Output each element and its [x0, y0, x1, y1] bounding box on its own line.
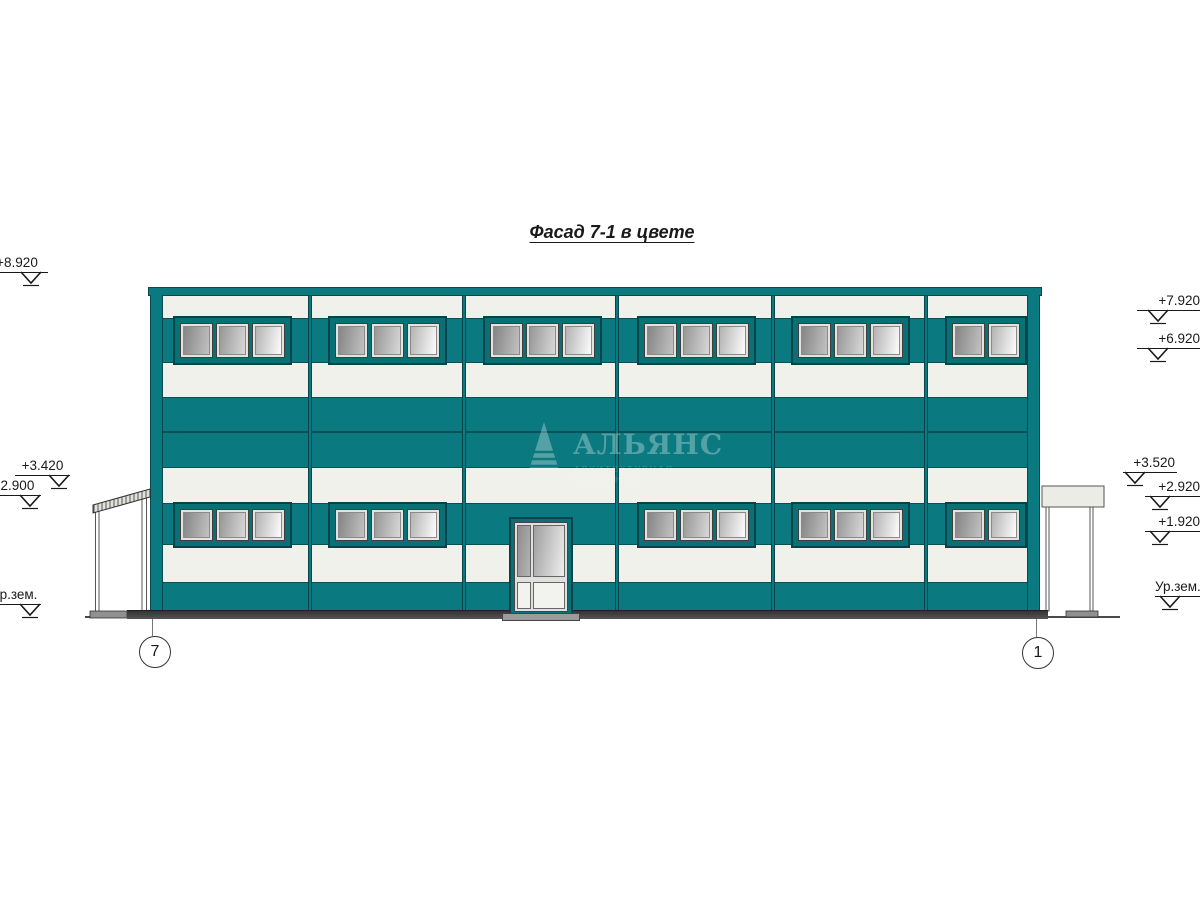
window-group: [637, 502, 756, 548]
axis-leader-line: [152, 619, 153, 636]
window-group: [483, 316, 602, 365]
window-pane: [526, 323, 559, 358]
window-group: [328, 502, 447, 548]
window-pane: [988, 509, 1021, 541]
facade-band-white: [163, 363, 1027, 397]
window-pane: [644, 323, 677, 358]
window-glass: [374, 512, 401, 538]
canopy-post: [1046, 507, 1049, 611]
window-pane: [371, 509, 404, 541]
elevation-arrow-icon: [1147, 495, 1173, 511]
window-pane: [407, 323, 440, 358]
door-leaf-wide: [533, 525, 565, 609]
elevation-mark: +6.920: [1137, 332, 1200, 349]
elevation-value: +7.920: [1158, 293, 1200, 308]
elevation-value: +2.920: [1158, 479, 1200, 494]
window-pane: [870, 323, 903, 358]
window-glass: [410, 326, 437, 355]
door-threshold: [502, 613, 580, 621]
facade-band-white: [163, 545, 1027, 582]
canopy-base: [1066, 611, 1098, 617]
panel-joint: [462, 296, 466, 610]
elevation-arrow-icon: [1147, 530, 1173, 546]
elevation-value: Ур.зем.: [0, 587, 37, 602]
entrance-door: [509, 517, 573, 617]
window-glass: [338, 512, 365, 538]
elevation-mark: +3.420: [15, 459, 70, 476]
elevation-value: +8.920: [0, 255, 38, 270]
elevation-value: Ур.зем.: [1155, 579, 1200, 594]
window-glass: [801, 512, 828, 538]
window-pane: [716, 323, 749, 358]
window-group: [173, 502, 292, 548]
window-glass: [183, 326, 210, 355]
window-pane: [371, 323, 404, 358]
window-glass: [991, 326, 1018, 355]
window-glass: [837, 512, 864, 538]
axis-leader-line: [1036, 619, 1037, 637]
window-glass: [719, 326, 746, 355]
door-panel: [533, 582, 565, 609]
window-glass: [647, 326, 674, 355]
elevation-value: +6.920: [1158, 331, 1200, 346]
window-glass: [647, 512, 674, 538]
door-glass: [517, 525, 531, 577]
window-glass: [183, 512, 210, 538]
window-pane: [216, 323, 249, 358]
window-glass: [565, 326, 592, 355]
elevation-mark: +2.920: [1145, 480, 1200, 497]
window-pane: [716, 509, 749, 541]
window-pane: [680, 323, 713, 358]
elevation-arrow-icon: [1157, 595, 1183, 611]
elevation-mark: +2.900: [0, 479, 41, 496]
window-group: [328, 316, 447, 365]
elevation-value: +3.420: [22, 458, 64, 473]
window-glass: [873, 326, 900, 355]
window-glass: [801, 326, 828, 355]
window-pane: [680, 509, 713, 541]
canopy-post: [96, 507, 100, 612]
elevation-arrow-icon: [17, 494, 43, 510]
window-pane: [216, 509, 249, 541]
facade-band-teal: [163, 582, 1027, 611]
window-glass: [410, 512, 437, 538]
building-base: [127, 610, 1048, 619]
window-pane: [180, 509, 213, 541]
window-pane: [644, 509, 677, 541]
window-pane: [252, 509, 285, 541]
elevation-mark: +3.520: [1123, 456, 1177, 473]
window-glass: [955, 326, 982, 355]
parapet-coping: [148, 287, 1042, 296]
window-glass: [837, 326, 864, 355]
axis-label: 7: [151, 643, 160, 661]
window-glass: [683, 326, 710, 355]
window-group: [637, 316, 756, 365]
window-pane: [834, 509, 867, 541]
window-group-two-pane: [945, 502, 1027, 548]
window-pane: [490, 323, 523, 358]
window-glass: [991, 512, 1018, 538]
window-glass: [493, 326, 520, 355]
axis-marker-7: 7: [139, 636, 171, 668]
elevation-arrow-icon: [1145, 347, 1171, 363]
window-pane: [870, 509, 903, 541]
door-panel: [517, 582, 531, 609]
left-canopy: [85, 483, 155, 623]
elevation-value: +3.520: [1133, 455, 1175, 470]
window-pane: [180, 323, 213, 358]
panel-joint: [615, 296, 619, 610]
canopy-post: [142, 497, 147, 612]
window-pane: [988, 323, 1021, 358]
window-glass: [873, 512, 900, 538]
window-glass: [219, 512, 246, 538]
axis-marker-1: 1: [1022, 637, 1054, 669]
window-group: [791, 502, 910, 548]
window-group: [791, 316, 910, 365]
window-pane: [834, 323, 867, 358]
axis-label: 1: [1034, 644, 1043, 662]
canopy-roof-hatched: [93, 489, 150, 513]
facade-drawing-canvas: Фасад 7-1 в цвете: [0, 0, 1200, 900]
facade-band-white: [163, 468, 1027, 503]
elevation-mark: +8.920: [0, 256, 48, 273]
window-glass: [255, 512, 282, 538]
door-glass: [533, 525, 565, 577]
window-pane: [798, 509, 831, 541]
elevation-arrow-icon: [46, 474, 72, 490]
window-glass: [374, 326, 401, 355]
window-group-two-pane: [945, 316, 1027, 365]
window-glass: [683, 512, 710, 538]
panel-joint: [308, 296, 312, 610]
window-pane: [335, 323, 368, 358]
elevation-mark-ground-level: Ур.зем.: [1155, 580, 1200, 597]
window-glass: [255, 326, 282, 355]
elevation-value: +1.920: [1158, 514, 1200, 529]
elevation-mark: +1.920: [1145, 515, 1200, 532]
elevation-arrow-icon: [17, 603, 43, 619]
window-glass: [529, 326, 556, 355]
window-group: [173, 316, 292, 365]
window-glass: [719, 512, 746, 538]
elevation-arrow-icon: [1145, 309, 1171, 325]
door-frame: [514, 522, 568, 612]
canopy-slab: [1042, 486, 1104, 507]
window-pane: [335, 509, 368, 541]
elevation-mark: +7.920: [1137, 294, 1200, 311]
drawing-title: Фасад 7-1 в цвете: [400, 222, 824, 243]
facade-band-teal: [163, 432, 1027, 468]
window-pane: [252, 323, 285, 358]
window-pane: [562, 323, 595, 358]
window-pane: [952, 509, 985, 541]
window-glass: [338, 326, 365, 355]
panel-joint: [924, 296, 928, 610]
elevation-mark-ground-level: Ур.зем.: [0, 588, 41, 605]
facade-band-teal: [163, 397, 1027, 432]
window-glass: [955, 512, 982, 538]
window-pane: [952, 323, 985, 358]
canopy-post: [1090, 507, 1093, 611]
elevation-value: +2.900: [0, 478, 34, 493]
window-glass: [219, 326, 246, 355]
door-leaf-narrow: [517, 525, 531, 609]
facade-band-white: [163, 296, 1027, 318]
canopy-base: [90, 611, 127, 618]
right-canopy: [1038, 483, 1116, 623]
panel-joint: [771, 296, 775, 610]
window-pane: [798, 323, 831, 358]
elevation-arrow-icon: [18, 271, 44, 287]
window-pane: [407, 509, 440, 541]
